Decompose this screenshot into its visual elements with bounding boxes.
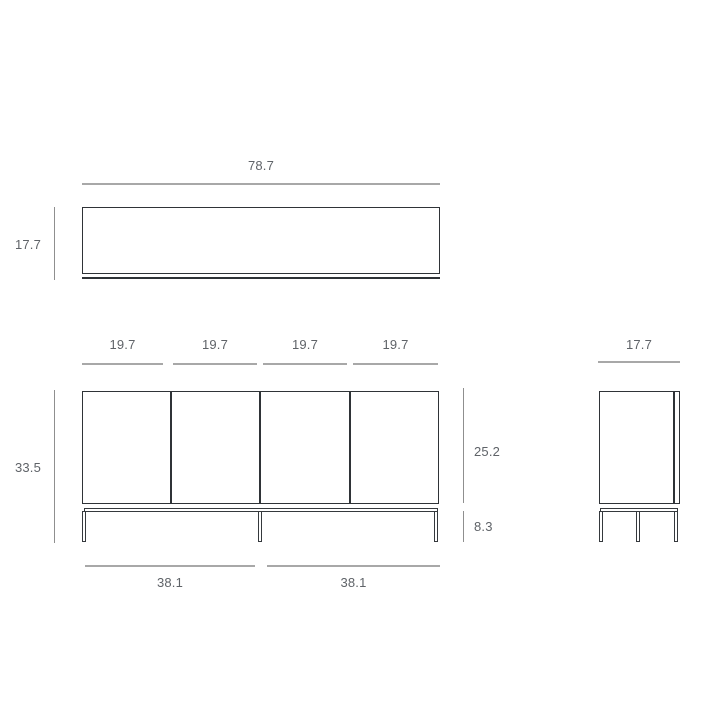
front-view-leg-span2-dimension-line xyxy=(267,565,440,567)
front-view-door-divider-1 xyxy=(170,391,172,504)
front-view-leg-span1-dimension-line xyxy=(85,565,255,567)
front-view-overall-height-label: 33.5 xyxy=(8,460,48,476)
front-view-leg-left xyxy=(82,511,86,542)
front-view-leg-height-dimension-line xyxy=(463,511,464,542)
side-view-door-thickness-line xyxy=(673,391,675,504)
side-view-depth-dimension-line xyxy=(598,361,680,363)
front-view-door1-dimension-line xyxy=(82,363,163,365)
top-view-width-label: 78.7 xyxy=(82,158,440,174)
side-view-leg-back xyxy=(599,511,603,542)
side-view-depth-label: 17.7 xyxy=(598,337,680,353)
front-view-door-divider-2 xyxy=(259,391,261,504)
front-view-door2-dimension-line xyxy=(173,363,257,365)
front-view-leg-span2-label: 38.1 xyxy=(267,575,440,591)
front-view-leg-height-label: 8.3 xyxy=(474,519,514,535)
side-view-leg-front xyxy=(674,511,678,542)
front-view-door4-dimension-line xyxy=(353,363,438,365)
front-view-leg-middle xyxy=(258,511,262,542)
side-view-body-outline xyxy=(599,391,680,504)
front-view-leg-span1-label: 38.1 xyxy=(85,575,255,591)
top-view-width-dimension-line xyxy=(82,183,440,185)
front-view-cabinet-height-label: 25.2 xyxy=(474,444,514,460)
front-view-door3-dimension-line xyxy=(263,363,347,365)
front-view-cabinet-height-dimension-line xyxy=(463,388,464,503)
front-view-door1-width-label: 19.7 xyxy=(82,337,163,353)
side-view-leg-middle xyxy=(636,511,640,542)
front-view-overall-height-dimension-line xyxy=(54,390,55,543)
front-view-door-divider-3 xyxy=(349,391,351,504)
top-view-depth-label: 17.7 xyxy=(8,237,48,253)
front-view-door4-width-label: 19.7 xyxy=(353,337,438,353)
dimension-diagram: 78.7 17.7 19.7 19.7 19.7 19.7 33.5 xyxy=(0,0,720,720)
front-view-leg-right xyxy=(434,511,438,542)
top-view-body-outline xyxy=(82,207,440,274)
top-view-depth-dimension-line xyxy=(54,207,55,280)
front-view-door3-width-label: 19.7 xyxy=(263,337,347,353)
top-view-front-edge-line xyxy=(82,277,440,279)
front-view-door2-width-label: 19.7 xyxy=(173,337,257,353)
